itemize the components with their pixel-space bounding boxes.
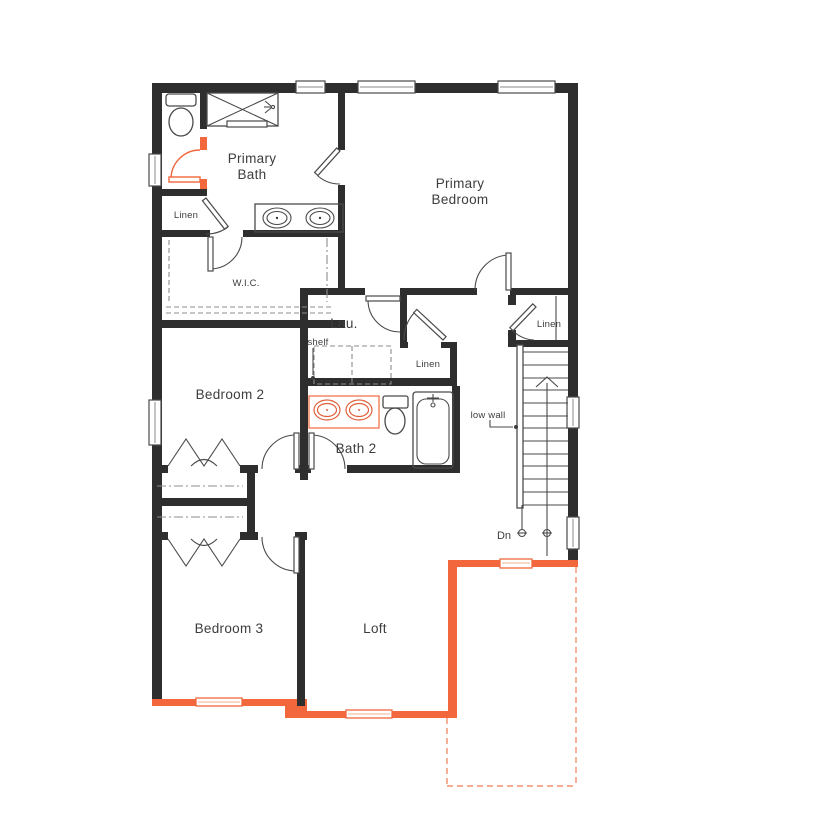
room-label-wic: W.I.C.	[232, 278, 259, 289]
fixtures	[166, 93, 453, 468]
window	[346, 710, 392, 718]
primary-bath-bedroom-door	[315, 148, 340, 184]
primary-bedroom-door	[475, 253, 511, 290]
annotation-shelf: shelf	[307, 337, 328, 348]
toilet-icon	[166, 94, 196, 136]
option-windows	[196, 559, 532, 718]
bathtub-icon	[413, 392, 453, 468]
windows	[149, 81, 579, 549]
laundry-door	[366, 296, 400, 332]
room-label-bath2: Bath 2	[336, 441, 377, 456]
window	[358, 81, 415, 93]
window	[149, 400, 161, 445]
shower-icon	[207, 93, 278, 127]
bedroom2-door	[262, 433, 299, 469]
room-label-bedroom2: Bedroom 2	[196, 387, 265, 402]
window	[500, 559, 532, 568]
window	[567, 517, 579, 549]
room-label-linen-hall: Linen	[416, 359, 440, 370]
room-label-loft: Loft	[363, 621, 387, 636]
room-label-primary-bedroom-line2: Bedroom	[432, 192, 489, 207]
window	[196, 698, 242, 706]
floorplan-page: Primary Bath Primary Bedroom Linen W.I.C…	[0, 0, 840, 840]
bath2-vanity-option-icon	[309, 396, 379, 428]
linen-hall-door	[404, 309, 446, 340]
window	[296, 81, 325, 93]
window	[498, 81, 555, 93]
stairs-treads	[523, 352, 568, 505]
window	[149, 154, 161, 186]
annotation-down: Dn	[497, 530, 511, 542]
room-label-linen-stairs: Linen	[537, 319, 561, 330]
window	[567, 397, 579, 428]
room-label-laundry: Lau.	[330, 316, 357, 331]
annotation-low-wall: low wall	[471, 410, 506, 421]
stairs	[517, 345, 568, 556]
double-vanity-icon	[255, 204, 343, 232]
room-label-linen-bath: Linen	[174, 210, 198, 221]
linen-bath-door	[202, 198, 228, 234]
wic-door	[208, 237, 242, 271]
floorplan-drawing: Primary Bath Primary Bedroom Linen W.I.C…	[0, 0, 840, 840]
room-label-primary-bath-line1: Primary	[228, 151, 277, 166]
toilet-icon	[383, 396, 408, 434]
room-label-primary-bedroom-line1: Primary	[436, 176, 485, 191]
bedroom3-door	[262, 537, 299, 573]
room-label-bedroom3: Bedroom 3	[195, 621, 264, 636]
room-label-primary-bath-line2: Bath	[238, 167, 267, 182]
bifold-door-bedroom3-closet	[168, 539, 240, 566]
primary-bath-entry-door	[169, 150, 200, 182]
doors	[169, 148, 536, 573]
bifold-door-bedroom2-closet	[168, 439, 240, 466]
optional-extension-dashed	[447, 567, 576, 786]
